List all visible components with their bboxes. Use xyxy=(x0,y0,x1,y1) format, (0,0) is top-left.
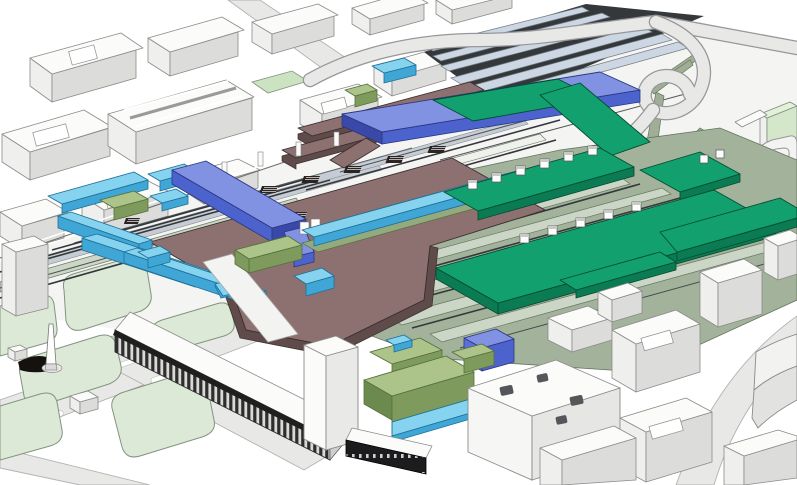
masterplan-svg xyxy=(0,0,797,485)
city-block xyxy=(700,259,762,327)
masterplan-3d-view xyxy=(0,0,797,485)
park-kiosk-2 xyxy=(8,345,27,361)
park-kiosk xyxy=(70,391,98,414)
west-white-building xyxy=(2,236,48,316)
city-block xyxy=(764,230,797,280)
